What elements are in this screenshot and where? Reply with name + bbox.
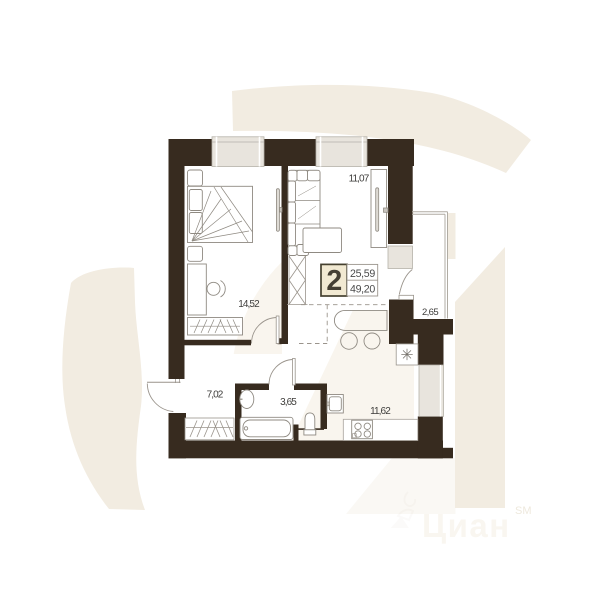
svg-text:11,07: 11,07 xyxy=(349,174,370,185)
svg-text:SM: SM xyxy=(515,505,532,517)
svg-text:Циан: Циан xyxy=(422,507,511,544)
svg-text:25,59: 25,59 xyxy=(350,268,375,280)
svg-text:3,65: 3,65 xyxy=(280,397,297,408)
svg-text:14,52: 14,52 xyxy=(238,299,260,310)
svg-text:2: 2 xyxy=(326,265,342,297)
svg-text:49,20: 49,20 xyxy=(350,284,375,296)
svg-text:11,62: 11,62 xyxy=(370,406,391,417)
svg-text:7,02: 7,02 xyxy=(207,389,224,400)
svg-text:2,65: 2,65 xyxy=(422,307,438,318)
